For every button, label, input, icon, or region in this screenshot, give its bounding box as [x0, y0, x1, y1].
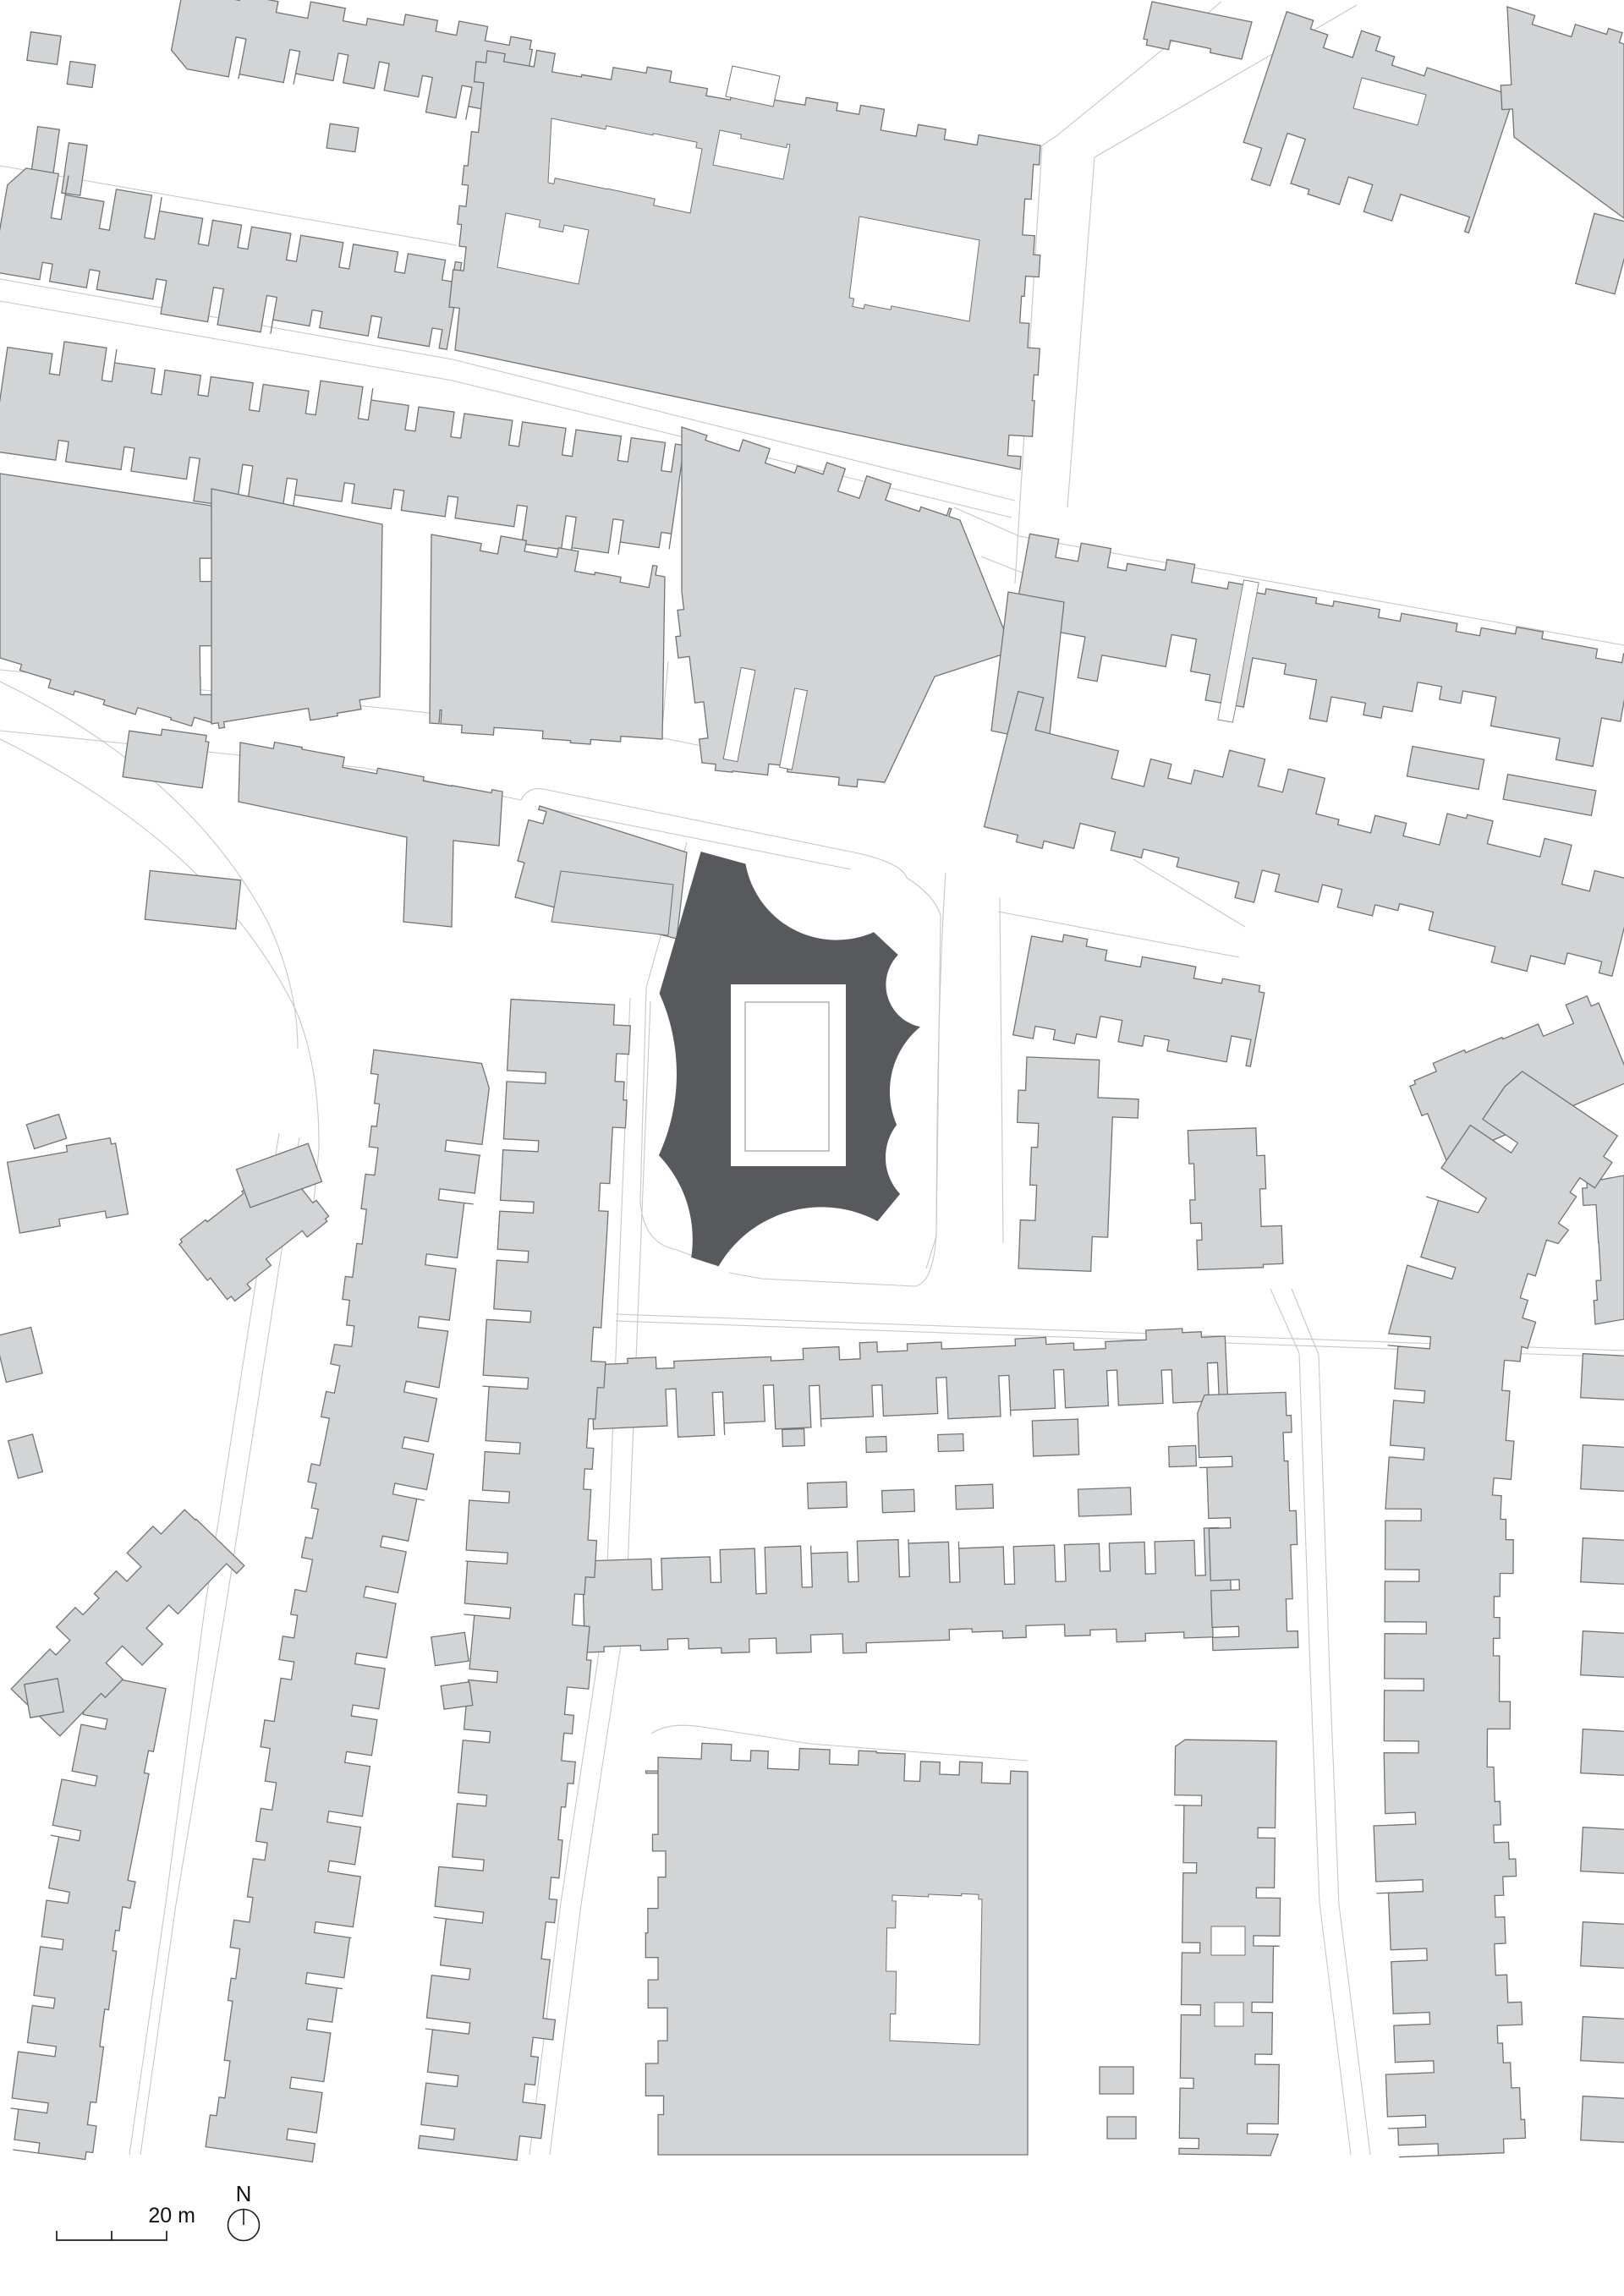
svg-text:N: N — [236, 2181, 252, 2206]
svg-text:20 m: 20 m — [148, 2204, 195, 2228]
